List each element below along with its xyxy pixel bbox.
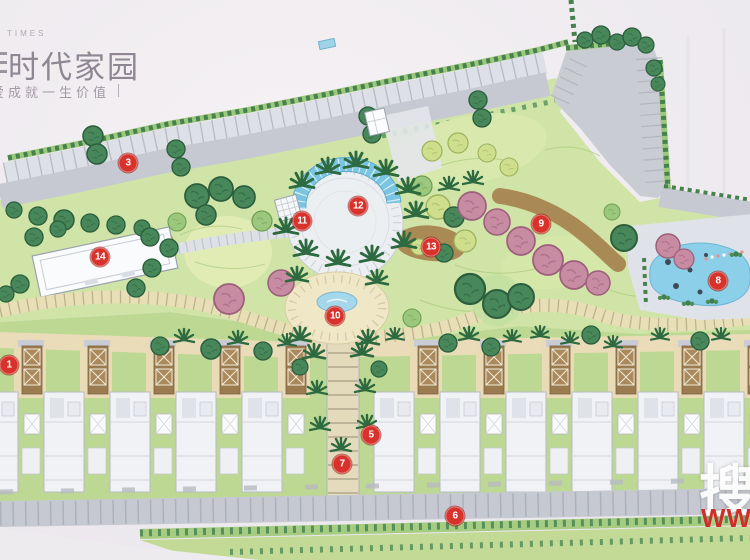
brand-name: 时代家园: [8, 42, 140, 87]
tagline-divider: [118, 84, 119, 97]
site-plan-photo: TIMES 时代家园 爱成就一生价值 13567891011121314 搜 W…: [0, 0, 750, 560]
watermark-www-text: WWW: [701, 503, 750, 534]
brand-tagline: 爱成就一生价值: [0, 82, 110, 101]
brand-partial-glyph: [0, 52, 7, 73]
brand-times-label: TIMES: [7, 29, 46, 38]
oval-pool: [317, 292, 357, 312]
central-footpath: [327, 336, 359, 514]
